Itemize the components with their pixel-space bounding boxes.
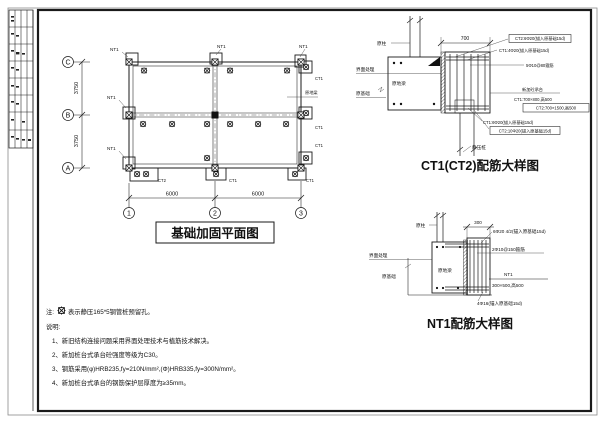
- ct1-tag: CT1: [315, 76, 324, 81]
- pile-marker-icon: [292, 171, 299, 178]
- pile-marker-icon: [255, 121, 261, 128]
- pile-marker-icon: [140, 121, 147, 128]
- note-prefix: 注:: [46, 307, 54, 316]
- cap-name-label: 新加砼承台: [522, 86, 543, 93]
- rebar-callout: CT1:6Φ20(锚入原基础15d): [483, 119, 534, 126]
- cap-name-label: NT1: [504, 272, 513, 277]
- center-column: [212, 112, 219, 119]
- column-icon: [212, 165, 218, 171]
- stirrup-callout: 5Φ10@80箍筋: [526, 62, 554, 69]
- column-icon: [298, 59, 304, 65]
- dim-label: 300: [474, 220, 482, 225]
- title-block: [9, 10, 33, 148]
- column-icon: [126, 165, 132, 171]
- pile-marker-icon: [58, 307, 66, 315]
- interface-label: 界面处理: [356, 66, 375, 73]
- pile-marker-icon: [227, 121, 234, 128]
- rebar-callout: CT1:4Φ20(锚入原基础15d): [499, 47, 550, 54]
- pile-marker-icon: [213, 171, 220, 178]
- nt1-tag: NT1: [110, 47, 119, 52]
- nt1-tag: NT1: [107, 146, 116, 151]
- grid-col-label: 2: [213, 211, 217, 218]
- notes-heading: 说明:: [46, 322, 61, 331]
- pile-marker-icon: [169, 121, 176, 128]
- ct1-tag: CT1: [229, 178, 238, 183]
- rebar-callout: 4Φ16(锚入原基础15d): [477, 300, 522, 307]
- ct1-tag: CT1: [315, 125, 324, 130]
- original-beam-label: 原地梁: [392, 80, 406, 87]
- note-item: 2、新加桩台式承台砼强度等级为C30。: [52, 350, 162, 359]
- pile-marker-icon: [204, 67, 211, 74]
- dim-label: 3750: [74, 82, 80, 94]
- cap-size-label: CT1:700×800,高500: [514, 96, 553, 103]
- ct2-tag: CT2: [158, 178, 167, 183]
- rebar-callout-boxed: CT2:6Φ20(锚入原基础15d): [515, 35, 566, 42]
- interface-label: 界面处理: [369, 252, 388, 259]
- beam-tag: 原地梁: [305, 89, 318, 96]
- pile-label: 静压桩: [472, 144, 486, 151]
- grid-col-label: 1: [127, 211, 131, 218]
- note-item: 4、新加桩台式承台的钢筋保护层厚度为≥35mm。: [52, 378, 190, 387]
- pile-marker-icon: [303, 64, 310, 71]
- cad-drawing: C B A 3750 3750: [0, 0, 600, 422]
- note-symbol-text: 表示静压165*5钢管桩预留孔。: [68, 307, 154, 316]
- column-icon: [298, 165, 304, 171]
- pile-marker-icon: [204, 155, 211, 162]
- nt-detail: 原柱 300 原地梁 界面处理 原基础 6Φ20 4/2(锚入原基础15d) 2…: [369, 212, 548, 331]
- dim-label: 3750: [74, 135, 80, 147]
- rebar-callout-boxed: CT2:10Φ20(锚入原基础15d): [499, 127, 552, 134]
- stirrup-callout: 2Φ10@150箍筋: [492, 246, 525, 253]
- ct-detail: 原柱 700 界面处理 原地梁 原基础 静压桩 CT2:6Φ20(锚入原基础15…: [356, 16, 589, 173]
- pile-markers: [134, 64, 309, 178]
- nt1-tag: NT1: [299, 44, 308, 49]
- pile-marker-icon: [284, 67, 291, 74]
- ct-detail-title: CT1(CT2)配筋大样图: [421, 158, 539, 173]
- plan-title: 基础加固平面图: [170, 226, 259, 241]
- cap-size-label: 300×500,高500: [492, 282, 524, 289]
- original-column-label: 原柱: [377, 40, 387, 47]
- original-column-label: 原柱: [416, 222, 426, 229]
- note-item: 3、钢筋采用(φ)HRB235,fy=210N/mm²,(Φ)HRB335,fy…: [52, 364, 240, 373]
- ct1-tag: CT1: [315, 143, 324, 148]
- pile-marker-icon: [141, 67, 148, 74]
- pile-marker-icon: [204, 121, 211, 128]
- ct1-tag: CT1: [306, 178, 315, 183]
- column-icon: [126, 112, 132, 118]
- grid-row-label: A: [66, 166, 71, 173]
- grid-row-label: C: [65, 60, 70, 67]
- plan-view: C B A 3750 3750: [63, 44, 324, 243]
- pile-marker-icon: [303, 155, 310, 162]
- drawing-sheet: C B A 3750 3750: [0, 0, 600, 422]
- nt1-tag: NT1: [217, 44, 226, 49]
- dim-label: 6000: [252, 192, 264, 198]
- nt-detail-title: NT1配筋大样图: [427, 316, 513, 331]
- pile-marker-icon: [283, 121, 290, 128]
- grid-row-label: B: [66, 113, 71, 120]
- notes: 注: 表示静压165*5钢管桩预留孔。 说明: 1、新旧结构连接问题采用界面处理…: [46, 307, 240, 388]
- pile-marker-icon: [134, 171, 141, 178]
- column-icon: [126, 59, 132, 65]
- grid-col-label: 3: [299, 211, 303, 218]
- dim-label: 700: [461, 36, 470, 42]
- pile-marker-icon: [227, 67, 234, 74]
- original-foundation-label: 原基础: [356, 90, 370, 97]
- cap-size-label-boxed: CT2:700×1500,高500: [536, 105, 577, 112]
- original-beam-label: 原地梁: [438, 267, 452, 274]
- pile-marker-icon: [303, 110, 310, 117]
- nt1-tag: NT1: [107, 95, 116, 100]
- rebar-callout: 6Φ20 4/2(锚入原基础15d): [493, 228, 546, 235]
- column-icon: [212, 59, 218, 65]
- pile-marker-icon: [143, 171, 150, 178]
- original-foundation-label: 原基础: [382, 273, 396, 280]
- dim-label: 6000: [166, 192, 178, 198]
- note-item: 1、新旧结构连接问题采用界面处理技术与植筋技术解决。: [52, 336, 213, 345]
